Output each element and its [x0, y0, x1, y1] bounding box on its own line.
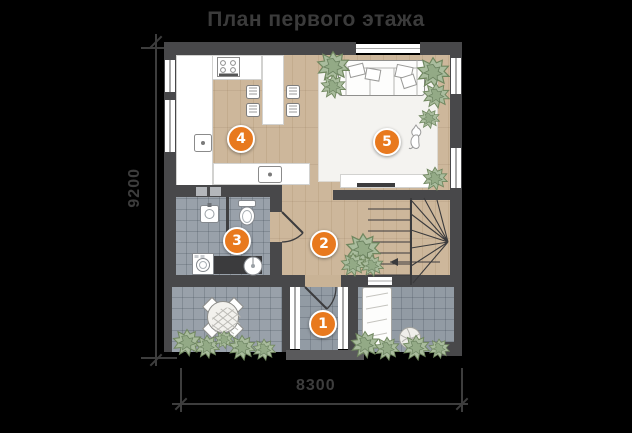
plant-icon [350, 330, 406, 364]
plant-icon [416, 56, 452, 132]
room-marker-4: 4 [227, 125, 255, 153]
plant-icon [316, 50, 350, 102]
dim-line-vertical [155, 34, 157, 366]
dim-label-width: 8300 [296, 377, 336, 395]
room-marker-1: 1 [309, 310, 337, 338]
dim-label-height: 9200 [126, 168, 144, 208]
room-marker-2: 2 [310, 230, 338, 258]
plant-icon [228, 334, 286, 364]
plant-icon [340, 232, 386, 280]
plant-icon [402, 334, 458, 364]
plant-icon [172, 328, 232, 362]
bathroom-door-arc [282, 233, 303, 242]
room-marker-3: 3 [223, 227, 251, 255]
plant-icon [422, 166, 450, 192]
page-title: План первого этажа [0, 8, 632, 32]
room-marker-5: 5 [373, 128, 401, 156]
dim-line-horizontal [172, 403, 468, 405]
floor-plan-screenshot: План первого этажа [0, 0, 632, 433]
entrance-door-arc [327, 287, 336, 309]
floor-plan: 1 2 3 4 5 [164, 42, 462, 360]
